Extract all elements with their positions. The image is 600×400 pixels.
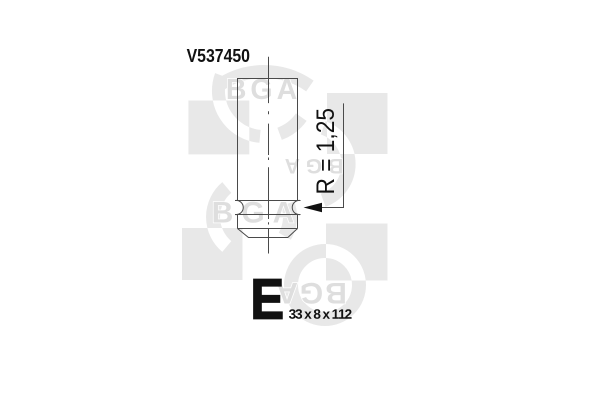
- svg-text:R = 1,25: R = 1,25: [313, 108, 340, 195]
- svg-text:BGA: BGA: [212, 197, 303, 230]
- svg-text:BGA: BGA: [274, 276, 347, 309]
- svg-text:E: E: [251, 268, 285, 332]
- svg-text:V537450: V537450: [187, 45, 250, 66]
